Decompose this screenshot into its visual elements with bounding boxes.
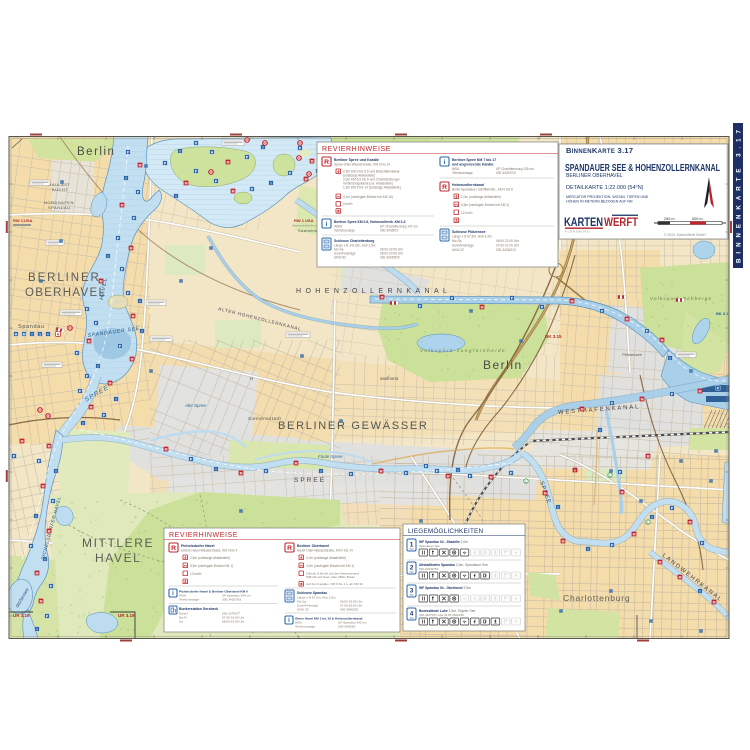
svg-text:M: M — [21, 440, 24, 444]
svg-text:Untere Havel-Wasserstraße, KM: Untere Havel-Wasserstraße, KM 0 bis 4 — [181, 549, 237, 553]
svg-text:12 km/h: 12 km/h — [461, 211, 473, 215]
svg-text:Schleuse Plötzensee: Schleuse Plötzensee — [452, 230, 486, 234]
svg-text:M: M — [713, 601, 716, 605]
svg-text:M: M — [679, 576, 682, 580]
svg-text:030-4327547 oder 0178-4522336: 030-4327547 oder 0178-4522336 — [419, 613, 464, 617]
svg-text:L: L — [609, 473, 611, 477]
svg-text:OBERHAVEL: OBERHAVEL — [25, 287, 106, 299]
svg-text:i: i — [55, 470, 56, 474]
svg-text:M: M — [131, 358, 134, 362]
svg-text:M: M — [22, 333, 25, 337]
svg-text:M: M — [165, 448, 168, 452]
svg-text:i: i — [179, 150, 180, 154]
svg-text:i: i — [82, 422, 83, 426]
svg-text:030-34357/83: 030-34357/83 — [222, 598, 241, 602]
svg-text:REVIERHINWEISE: REVIERHINWEISE — [322, 146, 391, 153]
svg-text:1,3m KM 9 bis 14 (zulässige Ab: 1,3m KM 9 bis 14 (zulässige Abladetiefe) — [343, 186, 401, 190]
svg-text:Berliner Spree und Kanäle: Berliner Spree und Kanäle — [334, 158, 379, 162]
svg-text:4,6m (niedrigste Brücke bei KM: 4,6m (niedrigste Brücke bei KM 2) — [461, 203, 509, 207]
svg-text:Telefonansage: Telefonansage — [334, 229, 355, 233]
svg-text:M: M — [185, 182, 188, 186]
svg-text:3: 3 — [410, 588, 414, 595]
svg-text:4: 4 — [410, 611, 414, 618]
svg-text:M: M — [36, 572, 39, 576]
svg-text:M: M — [295, 462, 298, 466]
svg-text:i: i — [587, 548, 588, 552]
svg-text:Schleuse Charlottenburg: Schleuse Charlottenburg — [334, 239, 374, 243]
svg-text:R: R — [287, 545, 292, 552]
svg-text:FLENSBURG: FLENSBURG — [565, 230, 591, 234]
svg-text:M: M — [481, 306, 484, 310]
svg-text:A: A — [211, 151, 214, 155]
svg-text:4,2m (niedrigste Brücke bei KM: 4,2m (niedrigste Brücke bei KM 1) — [306, 564, 354, 568]
svg-text:Plötzensee: Plötzensee — [622, 352, 643, 357]
svg-text:030-3540520: 030-3540520 — [340, 607, 359, 611]
svg-text:L: L — [525, 479, 527, 483]
svg-text:BK 3.15: BK 3.15 — [545, 334, 562, 339]
svg-text:Berlin-Spandauer Schifffahrtsk: Berlin-Spandauer Schifffahrtsk., KM 0 bi… — [452, 188, 513, 192]
svg-text:4,1m (niedrigste Brücke bei KM: 4,1m (niedrigste Brücke bei KM 16) — [343, 195, 393, 199]
svg-text:M: M — [311, 160, 314, 164]
svg-text:Berliner Spree KM 7 bis 17: Berliner Spree KM 7 bis 17 — [452, 158, 496, 162]
svg-text:i: i — [31, 333, 32, 337]
svg-text:Pichelsdorfer Havel: Pichelsdorfer Havel — [181, 544, 215, 548]
svg-text:250 m: 250 m — [664, 217, 675, 221]
svg-text:M: M — [88, 340, 91, 344]
svg-text:030-3435/820: 030-3435/820 — [380, 256, 400, 260]
svg-text:M: M — [544, 492, 547, 496]
svg-text:030-3435/03: 030-3435/03 — [380, 229, 398, 233]
svg-text:BERLINER GEWÄSSER: BERLINER GEWÄSSER — [278, 420, 429, 432]
svg-text:UKW 82: UKW 82 — [334, 256, 346, 260]
svg-text:SPANDAU: SPANDAU — [48, 205, 71, 210]
svg-text:L: L — [647, 520, 649, 524]
svg-text:MITTLERE: MITTLERE — [82, 536, 154, 550]
svg-text:i: i — [107, 255, 108, 259]
svg-text:BUCHT: BUCHT — [52, 187, 68, 192]
svg-text:06:00-22:00 Uhr: 06:00-22:00 Uhr — [496, 239, 520, 243]
svg-text:WF Spandau 04 - Oberhavel 2,5m: WF Spandau 04 - Oberhavel 2,5m — [419, 586, 471, 590]
svg-text:M: M — [40, 600, 43, 604]
svg-text:08:00-12:00 Uhr: 08:00-12:00 Uhr — [222, 620, 244, 624]
svg-text:M: M — [48, 445, 51, 449]
svg-text:i: i — [141, 330, 142, 334]
svg-text:UKW 20: UKW 20 — [297, 607, 309, 611]
svg-text:R: R — [171, 545, 176, 552]
svg-text:M: M — [42, 485, 45, 489]
svg-text:M: M — [661, 339, 664, 343]
svg-text:i: i — [262, 146, 263, 150]
svg-text:Telefonansage: Telefonansage — [179, 598, 199, 602]
svg-text:© 2024, KartenWerft GmbH: © 2024, KartenWerft GmbH — [664, 233, 706, 237]
svg-text:i: i — [326, 221, 328, 228]
svg-text:HÖHEN IN METERN BEZOGEN AUF NN: HÖHEN IN METERN BEZOGEN AUF NN — [566, 200, 633, 204]
svg-text:M: M — [227, 161, 230, 165]
svg-text:M: M — [139, 164, 142, 168]
svg-text:M: M — [130, 247, 133, 251]
svg-text:i: i — [599, 429, 600, 433]
svg-text:5,5m (niedrigste Brücke KM 1): 5,5m (niedrigste Brücke KM 1) — [190, 564, 233, 568]
svg-text:Berliner Spree KM 0-6, Hohenzo: Berliner Spree KM 0-6, Hohenzollernk. KM… — [334, 220, 406, 224]
svg-text:Faule Spree: Faule Spree — [318, 454, 343, 459]
svg-text:i: i — [215, 468, 216, 472]
svg-text:BERLINER OBERHAVEL: BERLINER OBERHAVEL — [566, 173, 623, 179]
svg-text:Telefonansage: Telefonansage — [295, 625, 315, 629]
svg-text:Hohenzollernkanal: Hohenzollernkanal — [452, 183, 484, 187]
svg-text:i: i — [115, 398, 116, 402]
svg-text:WERFT: WERFT — [604, 215, 639, 229]
svg-text:07:00-21:00 Uhr: 07:00-21:00 Uhr — [496, 244, 520, 248]
svg-text:i: i — [97, 365, 98, 369]
svg-text:Volkspark Jungfernheide: Volkspark Jungfernheide — [420, 348, 506, 353]
svg-text:UR 3.19: UR 3.19 — [13, 613, 30, 618]
svg-text:M: M — [647, 455, 650, 459]
svg-text:i: i — [699, 590, 700, 594]
svg-text:12 km/h: 12 km/h — [190, 572, 202, 576]
svg-text:i: i — [320, 470, 321, 474]
svg-text:i: i — [669, 357, 670, 361]
svg-text:RW 1 USA: RW 1 USA — [13, 218, 33, 223]
svg-text:i: i — [457, 469, 458, 473]
svg-text:030-34357/03: 030-34357/03 — [496, 171, 516, 175]
svg-text:M: M — [490, 476, 493, 480]
svg-text:UR 3.19: UR 3.19 — [118, 613, 135, 618]
svg-text:Telefonansage: Telefonansage — [452, 171, 473, 175]
svg-text:M: M — [633, 533, 636, 537]
svg-text:i: i — [35, 515, 36, 519]
svg-text:i: i — [175, 195, 176, 199]
svg-text:HAVEL: HAVEL — [95, 551, 141, 565]
svg-text:M: M — [447, 475, 450, 479]
svg-text:M: M — [132, 315, 135, 319]
svg-text:BERLINER: BERLINER — [28, 272, 101, 284]
svg-text:Siemensstadt: Siemensstadt — [248, 416, 282, 421]
svg-text:M: M — [562, 540, 565, 544]
svg-text:M: M — [100, 280, 103, 284]
svg-text:Bunkerstation Gersbeck: Bunkerstation Gersbeck — [179, 607, 218, 611]
svg-text:Berlin: Berlin — [77, 146, 115, 158]
svg-text:i: i — [444, 159, 446, 166]
svg-text:M: M — [232, 190, 235, 194]
svg-text:Sa: Sa — [179, 620, 183, 624]
svg-text:Auf den Kanälen, KM 0 bis 1 u.: Auf den Kanälen, KM 0 bis 1 u. ab KM 10 — [306, 582, 363, 586]
svg-text:Spandauer See: Spandauer See — [419, 544, 440, 548]
svg-text:M: M — [305, 178, 308, 182]
svg-text:Charlottenburg: Charlottenburg — [563, 593, 630, 603]
svg-text:030-20649753: 030-20649753 — [419, 567, 439, 571]
svg-text:Mo-Sa: Mo-Sa — [452, 239, 462, 243]
svg-text:BINNENKARTE 3.17: BINNENKARTE 3.17 — [736, 129, 743, 263]
svg-text:M: M — [48, 530, 51, 534]
svg-text:i: i — [651, 516, 652, 520]
svg-text:MERCATOR PROJEKTION, WGS84, TI: MERCATOR PROJEKTION, WGS84, TIEFEN UND — [566, 195, 649, 199]
svg-text:Havel-Oder-Wasserstraße, KM 0: Havel-Oder-Wasserstraße, KM 0 bis 14 — [297, 549, 353, 553]
svg-text:i: i — [44, 558, 45, 562]
svg-text:x km/h: x km/h — [343, 202, 353, 206]
svg-text:Berliner Oberhavel: Berliner Oberhavel — [297, 544, 329, 548]
svg-text:HOHENZOLLERNKANAL: HOHENZOLLERNKANAL — [296, 288, 451, 295]
svg-text:M: M — [381, 296, 384, 300]
svg-text:M: M — [626, 318, 629, 322]
svg-text:2,0m (zulässige Abladetiefe): 2,0m (zulässige Abladetiefe) — [461, 195, 501, 199]
svg-text:DETAILKARTE 1:22.000 (54°N): DETAILKARTE 1:22.000 (54°N) — [566, 185, 644, 191]
svg-text:SPREE: SPREE — [294, 477, 326, 484]
svg-text:H: H — [15, 333, 18, 337]
svg-text:M: M — [621, 491, 624, 495]
svg-text:Spree-Oder-Wasserstraße, KM 0: Spree-Oder-Wasserstraße, KM 0 bis 14 — [334, 163, 390, 167]
svg-text:Länge x B 67,5m, Hub 4,3m: Länge x B 67,5m, Hub 4,3m — [452, 235, 492, 239]
svg-text:1: 1 — [39, 333, 41, 337]
svg-text:2: 2 — [410, 565, 414, 572]
svg-text:i: i — [125, 177, 126, 181]
svg-text:i: i — [36, 628, 37, 632]
svg-text:REVIERHINWEISE: REVIERHINWEISE — [169, 532, 238, 539]
svg-text:M: M — [689, 521, 692, 525]
svg-text:i: i — [557, 506, 558, 510]
svg-text:030-3435/210: 030-3435/210 — [496, 248, 516, 252]
svg-text:i: i — [270, 182, 271, 186]
svg-text:M: M — [699, 390, 702, 394]
svg-text:und angrenzende Kanäle: und angrenzende Kanäle — [452, 163, 493, 167]
svg-text:2,5m (zulässige Abladetiefe): 2,5m (zulässige Abladetiefe) — [190, 556, 230, 560]
svg-text:Sonn/Feiertags: Sonn/Feiertags — [452, 244, 474, 248]
svg-text:M: M — [581, 408, 584, 412]
svg-text:Alte Spree: Alte Spree — [184, 403, 207, 408]
svg-text:Wasserstraßenkreuz: Wasserstraßenkreuz — [292, 224, 318, 228]
svg-text:M: M — [641, 398, 644, 402]
svg-text:e: e — [574, 469, 576, 473]
svg-text:M: M — [380, 470, 383, 474]
svg-text:UKW 22: UKW 22 — [452, 248, 464, 252]
svg-text:LIEGEMÖGLICHKEITEN: LIEGEMÖGLICHKEITEN — [408, 527, 484, 535]
svg-text:R: R — [442, 184, 447, 191]
svg-text:RW 1 USA: RW 1 USA — [294, 218, 314, 223]
svg-text:Spandau: Spandau — [18, 324, 45, 330]
svg-text:M: M — [659, 561, 662, 565]
svg-text:5/8km/h auf Seen über 250m Bre: 5/8km/h auf Seen über 250m Breite — [306, 575, 355, 579]
svg-text:M: M — [121, 204, 124, 208]
svg-text:2,0m (zulässige Abladetiefe): 2,0m (zulässige Abladetiefe) — [306, 556, 346, 560]
svg-text:M: M — [571, 300, 574, 304]
svg-text:KARTEN: KARTEN — [564, 215, 603, 229]
svg-text:Berlin: Berlin — [483, 358, 523, 372]
svg-text:R: R — [324, 159, 329, 166]
svg-text:500 m: 500 m — [692, 217, 703, 221]
svg-text:M: M — [90, 406, 93, 410]
svg-text:i: i — [139, 300, 140, 304]
svg-text:M: M — [109, 382, 112, 386]
svg-text:030-3435/83: 030-3435/83 — [338, 625, 356, 629]
svg-text:M: M — [240, 472, 243, 476]
svg-text:1: 1 — [410, 542, 414, 549]
